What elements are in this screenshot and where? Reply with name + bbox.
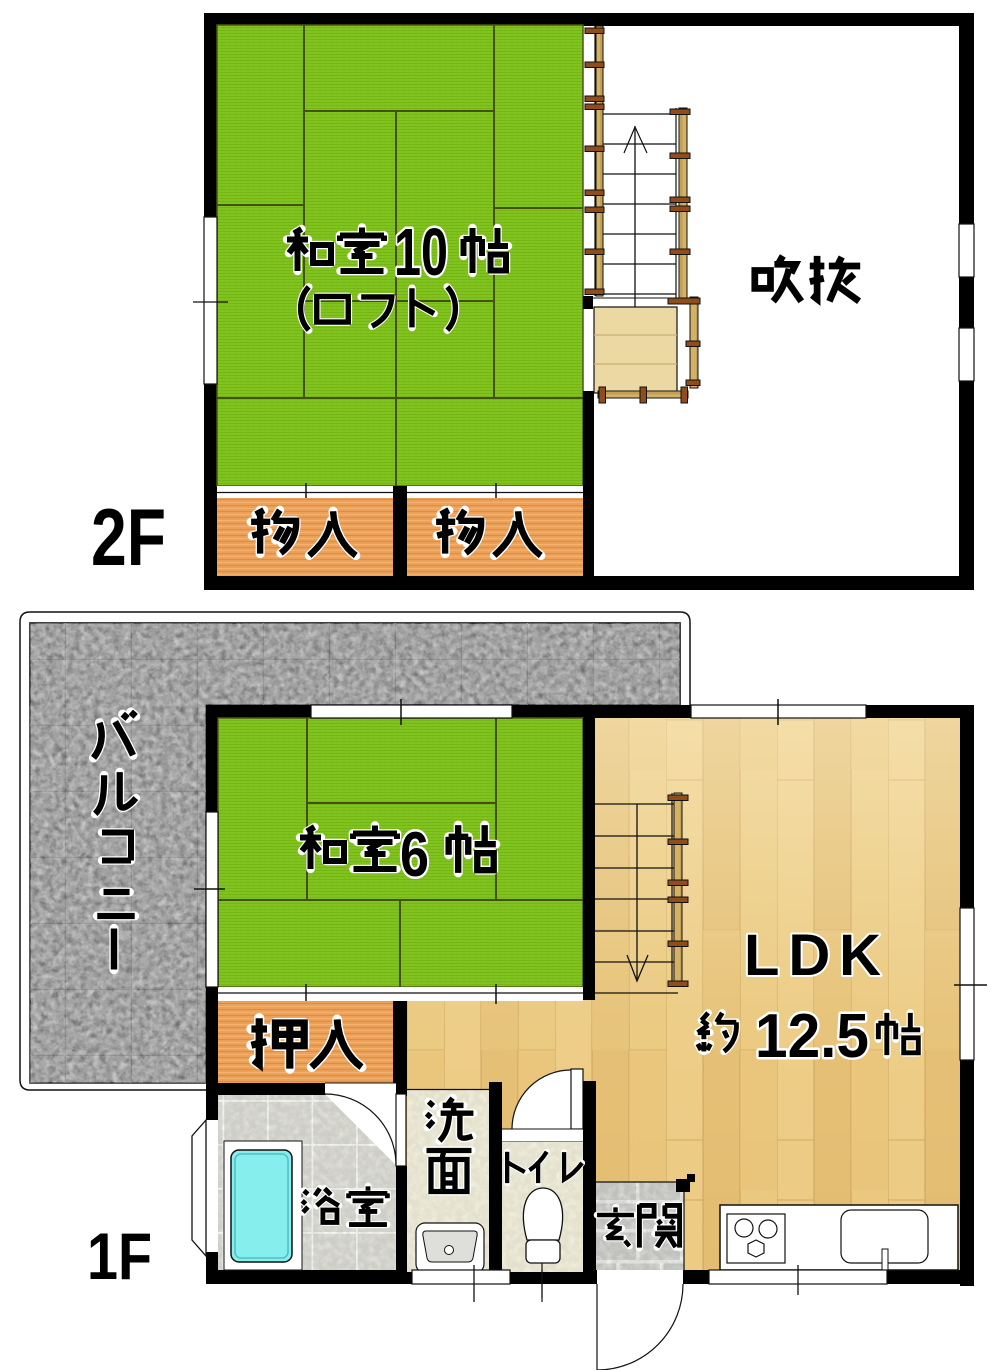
svg-text:6: 6 <box>400 820 429 890</box>
svg-text:12.5: 12.5 <box>755 1002 869 1071</box>
svg-text:2F: 2F <box>91 493 166 583</box>
svg-text:LDK: LDK <box>744 923 881 988</box>
svg-text:10: 10 <box>394 215 448 290</box>
svg-text:1F: 1F <box>87 1219 152 1293</box>
